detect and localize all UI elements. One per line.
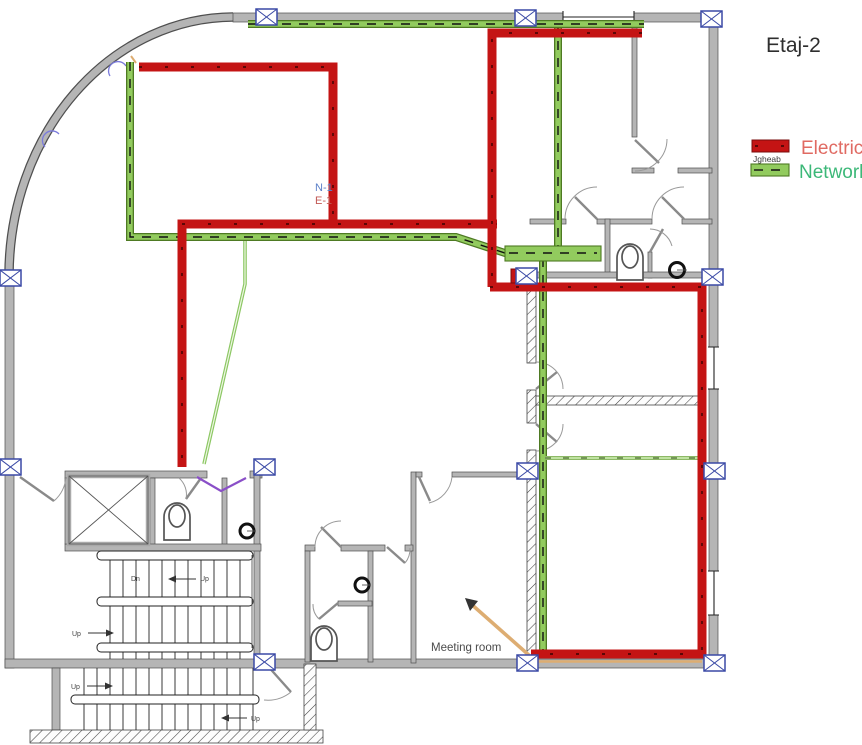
- riser-network-label: N-1: [315, 182, 333, 194]
- toilet-icon: [164, 503, 190, 540]
- drain-icon: [240, 524, 256, 538]
- legend-network-label: Network: [799, 162, 862, 183]
- stair-up-label: Up: [251, 716, 260, 723]
- stair-up-label: Up: [72, 631, 81, 638]
- riser-electric-label: E-1: [315, 195, 332, 207]
- toilet-icon: [617, 244, 643, 280]
- floor-plan-svg: Etaj-2 N-1 E-1 Meeting room Dn Up Up Up …: [0, 0, 862, 745]
- stair-up-label: Up: [200, 576, 209, 583]
- meeting-room-label: Meeting room: [431, 642, 501, 654]
- windows: [563, 11, 719, 615]
- wall-lamp-icon: [109, 62, 126, 76]
- drain-icon: [355, 578, 371, 592]
- floor-title: Etaj-2: [766, 34, 821, 57]
- purple-door-leaf: [197, 477, 246, 491]
- legend: Electric Jgheab Network: [751, 138, 862, 183]
- cable-tray: [505, 246, 601, 261]
- legend-electric-label: Electric: [801, 138, 862, 159]
- stair-down-label: Dn: [131, 576, 140, 583]
- toilet-icon: [311, 626, 337, 661]
- elevator-shaft: [69, 476, 148, 544]
- stair-up-label: Up: [71, 684, 80, 691]
- floor-plan-canvas: Etaj-2 N-1 E-1 Meeting room Dn Up Up Up …: [0, 0, 862, 745]
- legend-tray-label: Jgheab: [753, 154, 781, 164]
- staircase: [71, 551, 259, 730]
